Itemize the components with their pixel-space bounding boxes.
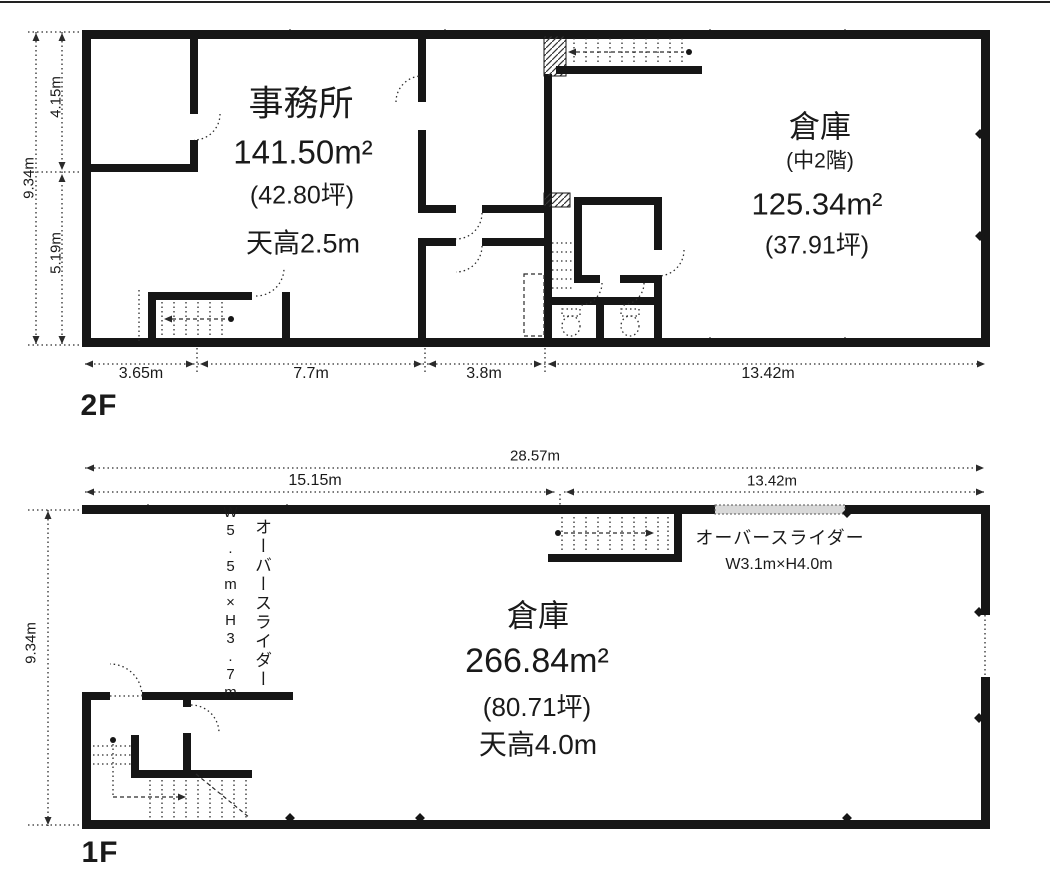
1f-dim-top-left: 15.15m (288, 473, 341, 489)
2f-office-ceiling: 天高2.5m (246, 231, 360, 258)
2f-dim-bottom-2: 7.7m (293, 366, 329, 382)
1f-overslider-opening (715, 505, 845, 514)
toilet-icon (562, 309, 580, 336)
1f-warehouse-tsubo: (80.71坪) (483, 694, 591, 720)
1f-overslider-left-label: W5.5m×H3.7m オーバースライダー (222, 504, 274, 702)
1f-overslider-top-size: W3.1m×H4.0m (725, 557, 832, 573)
2f-floor-label: 2F (80, 391, 117, 421)
2f-office-tsubo: (42.80坪) (250, 184, 354, 209)
1f-dim-top-total: 28.57m (510, 449, 560, 464)
2f-warehouse-tsubo: (37.91坪) (765, 234, 869, 259)
1f-dim-left: 9.34m (24, 622, 39, 664)
2f-dim-bottom-4: 13.42m (741, 366, 794, 382)
1f-dim-top-right: 13.42m (747, 474, 797, 489)
1f-overslider-left-size: W5.5m×H3.7m (222, 504, 239, 702)
2f-partition-walls (418, 36, 570, 342)
1f-overslider-top-name: オーバースライダー (695, 529, 864, 547)
2f-dim-left-total: 9.34m (22, 157, 37, 199)
2f-topleft-room-walls (85, 36, 198, 172)
2f-dim-bottom-1: 3.65m (119, 366, 163, 382)
toilet-icon (621, 309, 639, 336)
2f-dim-left-bottom: 5.19m (49, 232, 64, 274)
2f-staircase-lower (139, 290, 290, 344)
2f-dim-bottom-3: 3.8m (466, 366, 502, 382)
1f-warehouse-name: 倉庫 (507, 601, 569, 632)
floor-plan-document: 事務所 141.50m² (42.80坪) 天高2.5m 倉庫 (中2階) 12… (0, 0, 1050, 890)
2f-office-area: 141.50m² (233, 136, 372, 169)
2f-warehouse-name: 倉庫 (789, 112, 851, 143)
2f-dim-left-top: 4.15m (49, 76, 64, 118)
1f-staircase-upper (548, 514, 682, 562)
1f-overslider-left-name: オーバースライダー (249, 518, 274, 689)
1f-floor-label: 1F (81, 838, 118, 868)
2f-warehouse-area: 125.34m² (752, 189, 883, 220)
1f-warehouse-ceiling: 天高4.0m (479, 731, 597, 759)
1f-warehouse-area: 266.84m² (465, 644, 609, 678)
2f-staircase-upper (556, 38, 702, 74)
2f-warehouse-note: (中2階) (786, 151, 854, 172)
2f-office-name: 事務所 (248, 87, 353, 122)
